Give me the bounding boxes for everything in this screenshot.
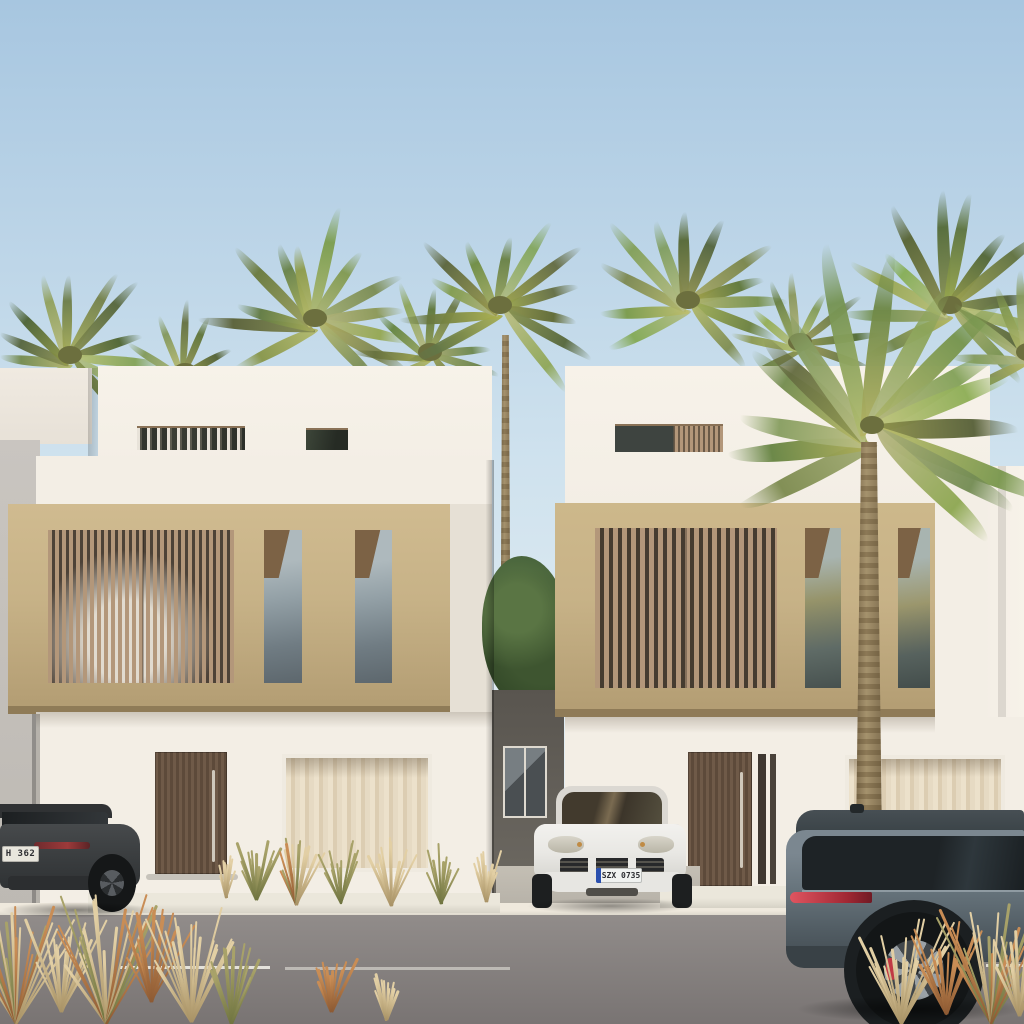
right-villa-door-sidelight-1 (758, 754, 766, 884)
left-villa-door-handle (212, 770, 215, 862)
grass-tuft (440, 844, 444, 904)
left-villa-window-a-reveal (264, 530, 302, 578)
grass-tuft (225, 856, 229, 898)
palm-crown-tuft (488, 296, 512, 314)
grass-tuft (295, 839, 299, 905)
left-villa-box-shadow (36, 712, 492, 728)
left-suv-license-plate: H 362 (2, 846, 39, 862)
left-suv: H 362 (0, 798, 152, 920)
left-villa-roof-window-wide (137, 426, 245, 450)
grass-tuft (255, 842, 259, 900)
left-villa-window-b-reveal (355, 530, 392, 578)
grass-tuft (1018, 926, 1022, 1016)
left-villa-passage-shadow-edge (486, 460, 494, 908)
right-suv-windows (802, 836, 1024, 890)
grass-tuft (230, 939, 234, 1024)
right-villa-door-handle (740, 772, 743, 868)
scene-stage: H 362 SZX 0735 (0, 0, 1024, 1024)
plate-euro-band (596, 868, 601, 883)
neighbor-parapet (0, 368, 92, 444)
left-villa-slat-screen (48, 530, 234, 683)
center-suv-plate-text: SZX 0735 (598, 871, 641, 880)
left-villa-white-band (36, 456, 492, 508)
right-suv-taillight (790, 892, 872, 903)
left-villa-upper-box (98, 366, 492, 466)
center-suv-shadow (526, 898, 694, 914)
right-villa-slat-seam (685, 528, 687, 688)
left-villa-entry-door (155, 752, 227, 874)
grass-tuft (900, 914, 904, 1024)
right-villa-roof-window (615, 424, 723, 452)
left-suv-plate-text: H 362 (6, 849, 36, 859)
center-suv-headlight-amber-right (640, 842, 645, 847)
center-suv: SZX 0735 (526, 784, 694, 916)
left-villa-slat-seam (142, 530, 144, 683)
right-suv-roof-pod (850, 804, 864, 813)
center-suv-headlight-amber-left (577, 842, 582, 847)
left-villa-roof-window-small (306, 428, 348, 450)
grass-tuft (990, 904, 994, 1024)
center-suv-license-plate: SZX 0735 (596, 868, 642, 883)
palm-crown-tuft (860, 416, 884, 434)
right-villa-window-a-reveal (805, 528, 841, 578)
grass-tuft (190, 907, 194, 1022)
left-suv-taillight (34, 842, 90, 849)
grass-tuft (15, 904, 19, 1024)
palm-crown-tuft (58, 346, 82, 364)
grass-tuft (150, 912, 154, 1002)
grass-tuft (105, 894, 109, 1024)
left-suv-wheel-rim (100, 870, 124, 896)
right-villa-window-b-reveal (898, 528, 930, 578)
palm-crown-tuft (303, 309, 327, 327)
grass-tuft (340, 841, 344, 903)
grass-tuft (330, 952, 334, 1012)
palm-crown-tuft (676, 291, 700, 309)
grass-tuft (390, 838, 394, 906)
center-suv-intake (586, 888, 638, 896)
grass-tuft (485, 847, 489, 902)
right-villa-door-sidelight-2 (770, 754, 776, 884)
grass-tuft (385, 965, 389, 1020)
